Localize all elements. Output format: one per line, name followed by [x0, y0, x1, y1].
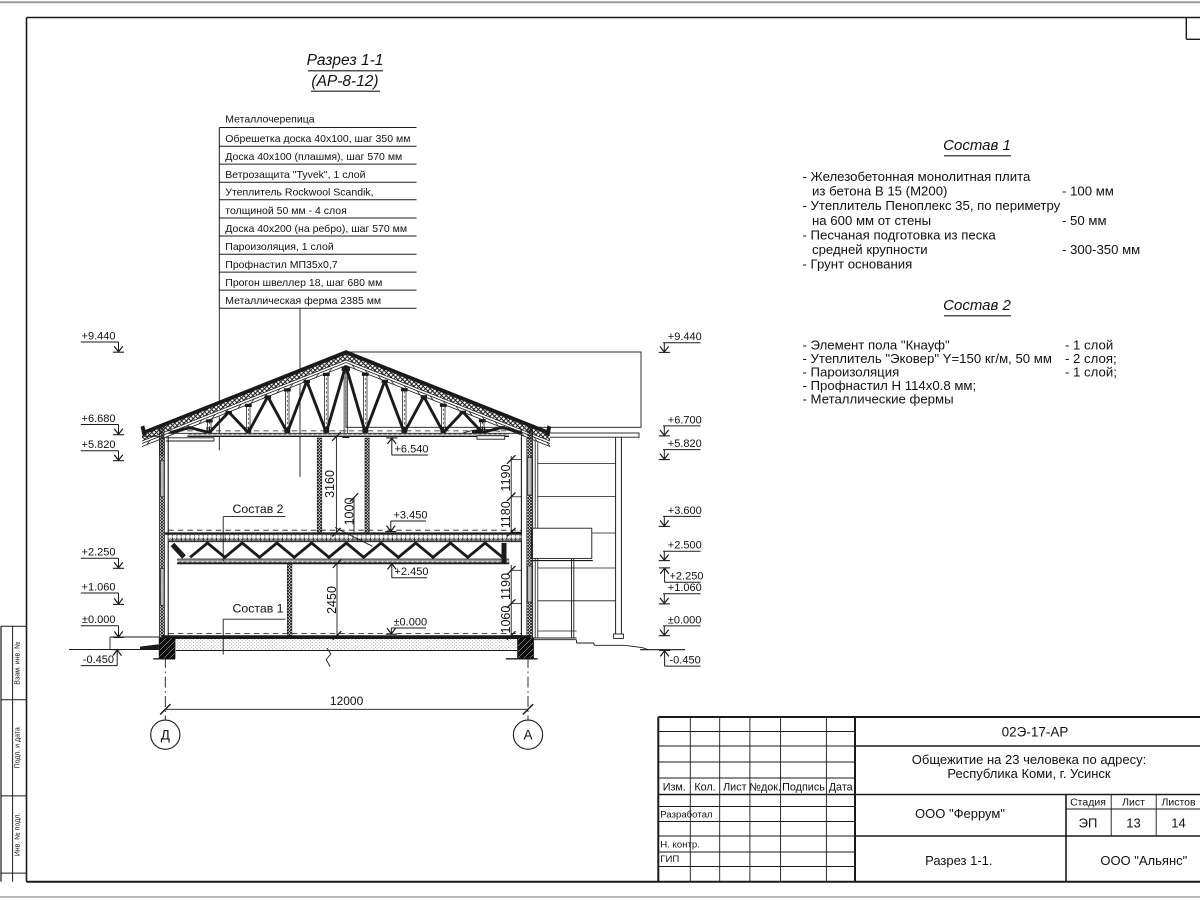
svg-text:Кол.: Кол.	[694, 782, 715, 794]
svg-text:Обрешетка доска 40x100, шаг 35: Обрешетка доска 40x100, шаг 350 мм	[225, 133, 410, 145]
svg-text:-0.450: -0.450	[670, 654, 701, 666]
svg-text:Д: Д	[161, 728, 170, 743]
svg-text:№док.: №док.	[749, 782, 781, 794]
svg-text:Общежитие на 23 человека по ад: Общежитие на 23 человека по адресу:	[912, 752, 1146, 767]
svg-text:+2.250: +2.250	[82, 547, 116, 559]
svg-text:1000: 1000	[343, 498, 357, 526]
svg-text:Доска 40x100 (плашмя), шаг 570: Доска 40x100 (плашмя), шаг 570 мм	[225, 151, 402, 163]
svg-text:Разрез 1-1: Разрез 1-1	[307, 52, 384, 69]
svg-text:А: А	[523, 728, 532, 743]
svg-text:+9.440: +9.440	[82, 330, 116, 342]
svg-text:+3.450: +3.450	[394, 509, 428, 521]
svg-text:+6.680: +6.680	[82, 413, 116, 425]
svg-text:Состав 1: Состав 1	[233, 602, 284, 616]
svg-text:±0.000: ±0.000	[82, 614, 116, 626]
svg-text:+6.700: +6.700	[668, 414, 702, 426]
svg-text:Пароизоляция, 1 слой: Пароизоляция, 1 слой	[225, 241, 334, 253]
svg-text:Дата: Дата	[829, 782, 853, 794]
svg-text:Подпись: Подпись	[782, 782, 825, 794]
svg-text:на 600 мм от стены: на 600 мм от стены	[812, 213, 931, 228]
svg-text:1180: 1180	[499, 501, 513, 528]
svg-text:Разрез 1-1.: Разрез 1-1.	[925, 853, 992, 868]
svg-text:- 50 мм: - 50 мм	[1062, 213, 1107, 228]
svg-text:Металлическая ферма 2385 мм: Металлическая ферма 2385 мм	[225, 295, 381, 307]
svg-text:02Э-17-АР: 02Э-17-АР	[1002, 725, 1069, 740]
svg-text:Разработал: Разработал	[660, 810, 712, 821]
svg-text:+9.440: +9.440	[668, 331, 702, 343]
svg-text:(АР-8-12): (АР-8-12)	[311, 73, 378, 90]
svg-text:Взам. инв. №: Взам. инв. №	[15, 641, 22, 684]
svg-text:Подп. и дата: Подп. и дата	[15, 727, 22, 768]
svg-text:Изм.: Изм.	[663, 782, 686, 794]
svg-text:толщиной 50 мм - 4 слоя: толщиной 50 мм - 4 слоя	[225, 205, 346, 217]
svg-text:+2.500: +2.500	[668, 540, 702, 552]
svg-text:Ветрозащита "Tyvek", 1 слой: Ветрозащита "Tyvek", 1 слой	[225, 169, 365, 181]
svg-text:Республика Коми, г. Усинск: Республика Коми, г. Усинск	[947, 766, 1110, 781]
svg-text:+2.250: +2.250	[670, 571, 704, 583]
svg-text:+3.600: +3.600	[668, 505, 702, 517]
svg-text:+5.820: +5.820	[82, 439, 116, 451]
svg-text:- Песчаная подготовка из песка: - Песчаная подготовка из песка	[803, 227, 997, 242]
svg-text:Доска 40x200 (на ребро), шаг 5: Доска 40x200 (на ребро), шаг 570 мм	[225, 223, 407, 235]
svg-text:Инв. № подл.: Инв. № подл.	[15, 813, 22, 857]
svg-text:Лист: Лист	[723, 782, 747, 794]
svg-text:Стадия: Стадия	[1070, 797, 1106, 809]
svg-text:Состав 2: Состав 2	[943, 297, 1011, 314]
svg-text:1190: 1190	[499, 573, 513, 600]
svg-text:+2.450: +2.450	[395, 566, 429, 578]
svg-text:Прогон швеллер 18, шаг 680 мм: Прогон швеллер 18, шаг 680 мм	[225, 277, 382, 289]
svg-text:ЭП: ЭП	[1079, 816, 1098, 831]
svg-text:- 300-350 мм: - 300-350 мм	[1062, 242, 1140, 257]
svg-text:Металлочерепица: Металлочерепица	[225, 114, 314, 126]
svg-text:ООО "Альянс": ООО "Альянс"	[1100, 853, 1187, 868]
svg-text:Состав 1: Состав 1	[943, 137, 1011, 154]
svg-text:+1.060: +1.060	[668, 582, 702, 594]
svg-text:1190: 1190	[499, 465, 513, 492]
svg-text:1060: 1060	[499, 606, 513, 634]
svg-text:- Металлические фермы: - Металлические фермы	[803, 392, 954, 407]
svg-text:средней крупности: средней крупности	[812, 242, 928, 257]
svg-text:14: 14	[1171, 816, 1185, 831]
svg-text:- Грунт основания: - Грунт основания	[803, 257, 913, 272]
svg-text:Лист: Лист	[1122, 797, 1145, 809]
svg-text:13: 13	[1126, 816, 1140, 831]
svg-text:+6.540: +6.540	[395, 443, 429, 455]
svg-text:Н. контр.: Н. контр.	[660, 839, 700, 850]
svg-text:+5.820: +5.820	[668, 438, 702, 450]
svg-text:- Утеплитель Пеноплекс 35, по: - Утеплитель Пеноплекс 35, по периметру	[803, 198, 1061, 213]
svg-text:Состав 2: Состав 2	[233, 502, 284, 516]
svg-text:12000: 12000	[330, 694, 364, 708]
svg-text:Утеплитель Rockwool Scandik,: Утеплитель Rockwool Scandik,	[225, 187, 373, 199]
svg-text:- 1 слой;: - 1 слой;	[1065, 365, 1117, 380]
svg-text:- Железобетонная монолитная п: - Железобетонная монолитная плита	[803, 169, 1032, 184]
svg-text:-0.450: -0.450	[83, 654, 114, 666]
svg-text:ГИП: ГИП	[660, 854, 679, 865]
svg-text:- 100 мм: - 100 мм	[1062, 184, 1114, 199]
svg-text:±0.000: ±0.000	[394, 616, 428, 628]
svg-text:ООО "Феррум": ООО "Феррум"	[915, 806, 1005, 821]
svg-text:Листов: Листов	[1161, 797, 1196, 809]
svg-text:2450: 2450	[325, 586, 339, 614]
svg-text:+1.060: +1.060	[82, 581, 116, 593]
svg-text:из бетона В 15 (М200): из бетона В 15 (М200)	[812, 184, 947, 199]
svg-text:3160: 3160	[323, 470, 337, 498]
svg-text:Профнастил МП35х0,7: Профнастил МП35х0,7	[225, 259, 337, 271]
svg-text:±0.000: ±0.000	[668, 614, 702, 626]
